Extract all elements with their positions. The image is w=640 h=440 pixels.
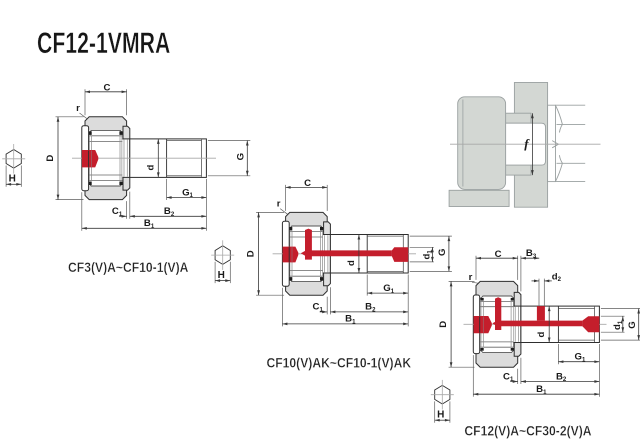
svg-text:C: C (104, 83, 111, 94)
svg-text:G: G (437, 249, 448, 256)
svg-text:C: C (495, 249, 502, 260)
svg-text:H: H (218, 270, 225, 281)
svg-text:D: D (45, 155, 56, 162)
svg-text:H: H (437, 409, 444, 420)
svg-text:r: r (277, 199, 281, 210)
svg-text:CF3(V)A~CF10-1(V)A: CF3(V)A~CF10-1(V)A (68, 259, 188, 275)
svg-text:CF12(V)A~CF30-2(V)A: CF12(V)A~CF30-2(V)A (464, 423, 591, 439)
svg-text:d: d (145, 164, 156, 170)
svg-text:D: D (246, 250, 257, 257)
svg-text:G: G (627, 321, 638, 328)
svg-text:d: d (346, 260, 357, 266)
svg-text:CF10(V)AK~CF10-1(V)AK: CF10(V)AK~CF10-1(V)AK (266, 355, 411, 371)
svg-text:D: D (438, 321, 449, 328)
svg-text:G: G (236, 153, 247, 160)
svg-text:H: H (9, 174, 16, 185)
svg-text:CF12-1VMRA: CF12-1VMRA (37, 28, 170, 60)
svg-text:C: C (304, 178, 311, 189)
svg-text:r: r (76, 103, 80, 114)
svg-text:d: d (536, 331, 547, 337)
